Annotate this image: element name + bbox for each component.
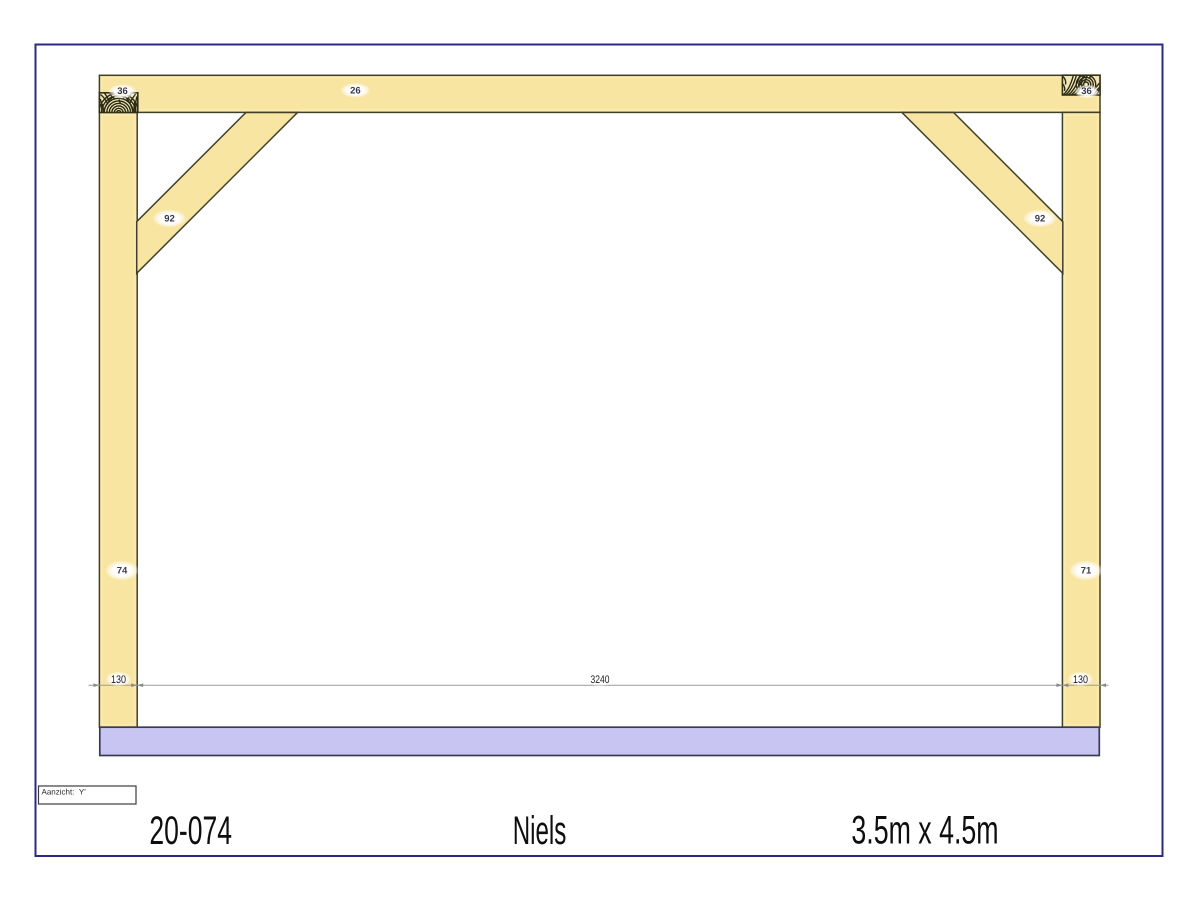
svg-text:130: 130 [111,674,126,686]
svg-text:74: 74 [117,566,128,577]
svg-text:20-074: 20-074 [149,809,232,853]
svg-text:Aanzicht: Y': Aanzicht: Y' [42,788,87,797]
svg-text:3240: 3240 [591,674,610,686]
svg-text:92: 92 [1035,213,1046,224]
svg-text:36: 36 [1081,86,1092,97]
svg-text:Niels: Niels [513,809,567,853]
svg-text:130: 130 [1073,674,1088,686]
svg-text:92: 92 [164,214,175,225]
svg-text:26: 26 [350,85,361,96]
svg-text:3.5m x 4.5m: 3.5m x 4.5m [851,809,998,853]
svg-text:71: 71 [1081,566,1092,577]
svg-text:36: 36 [117,86,128,97]
